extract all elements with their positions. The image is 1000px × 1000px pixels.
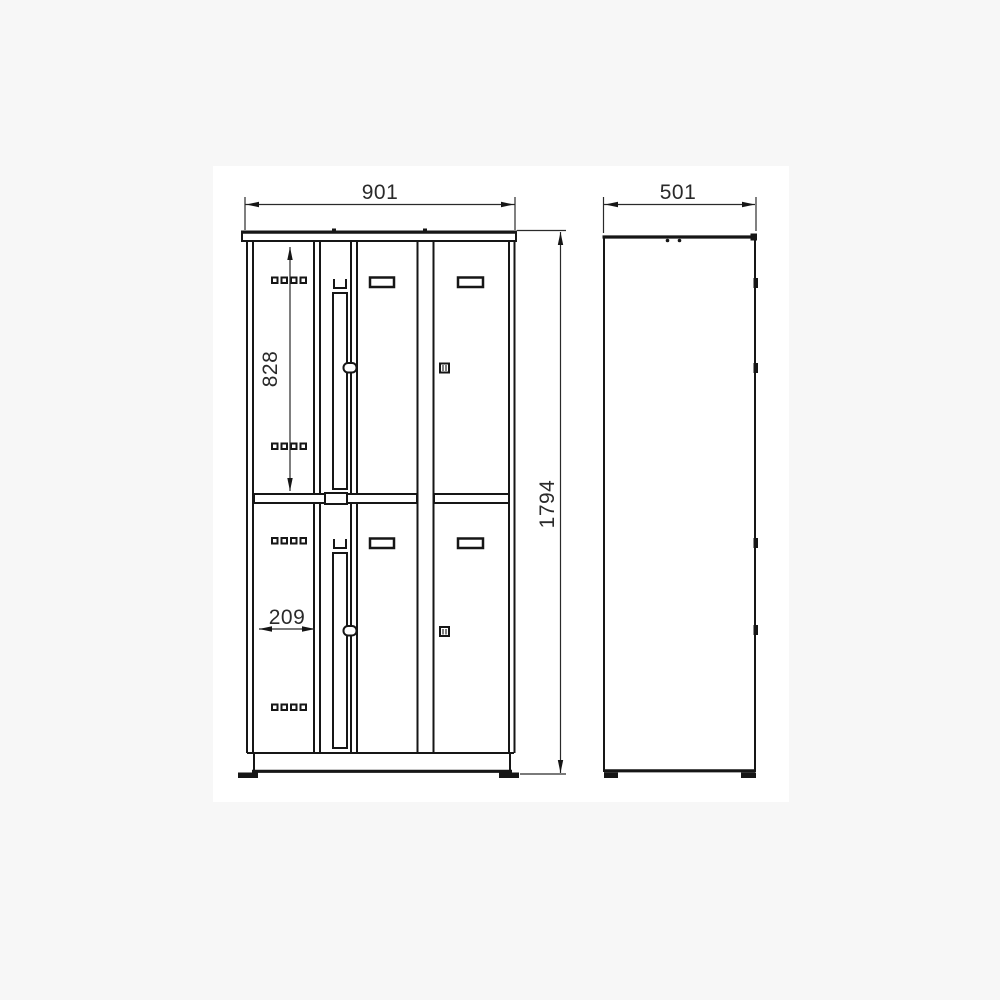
vent-hole bbox=[282, 705, 288, 711]
foot bbox=[741, 773, 756, 779]
dim-value-height: 1794 bbox=[536, 480, 559, 529]
vent-hole bbox=[291, 444, 297, 450]
vent-hole bbox=[291, 278, 297, 284]
vent-hole bbox=[272, 278, 278, 284]
product-drawing-page: 901 501 1794 828 209 bbox=[0, 0, 1000, 1000]
screw-hole bbox=[678, 239, 682, 243]
door-handle-recess bbox=[333, 293, 347, 489]
vent-hole bbox=[301, 444, 307, 450]
key-lock-body bbox=[440, 364, 449, 373]
foot bbox=[238, 773, 258, 779]
vent-hole bbox=[272, 444, 278, 450]
hinge-mark bbox=[754, 363, 759, 373]
dim-value-compartment-height: 828 bbox=[259, 351, 282, 388]
side-top-corner-block bbox=[751, 234, 758, 241]
foot bbox=[604, 773, 618, 779]
vent-hole bbox=[301, 278, 307, 284]
vent-hole bbox=[291, 538, 297, 544]
key-lock-icon bbox=[440, 627, 449, 636]
mid-divider-center-box bbox=[325, 493, 347, 504]
front-mid-divider bbox=[254, 493, 509, 504]
vent-hole bbox=[272, 705, 278, 711]
cylinder-lock-icon bbox=[344, 626, 357, 636]
key-lock-body bbox=[440, 627, 449, 636]
foot bbox=[499, 773, 519, 779]
vent-hole bbox=[301, 705, 307, 711]
vent-hole bbox=[291, 705, 297, 711]
top-seam-tick bbox=[423, 229, 427, 232]
key-lock-icon bbox=[440, 364, 449, 373]
dim-value-compartment-width: 209 bbox=[269, 606, 306, 629]
hinge-mark bbox=[754, 278, 759, 288]
mid-divider-right-band bbox=[434, 494, 509, 503]
vent-hole bbox=[301, 538, 307, 544]
hinge-mark bbox=[754, 625, 759, 635]
vent-hole bbox=[282, 538, 288, 544]
cylinder-lock-icon bbox=[344, 363, 357, 373]
vent-hole bbox=[282, 278, 288, 284]
door-label-slot bbox=[458, 539, 483, 549]
dim-value-depth: 501 bbox=[660, 181, 697, 204]
door-label-slot bbox=[370, 278, 394, 288]
side-view bbox=[603, 234, 759, 779]
door-handle-recess bbox=[333, 553, 347, 748]
door-label-slot bbox=[458, 278, 483, 288]
screw-hole bbox=[666, 239, 670, 243]
locker-technical-drawing: 901 501 1794 828 209 bbox=[0, 0, 1000, 1000]
dim-value-width: 901 bbox=[362, 181, 399, 204]
top-seam-tick bbox=[332, 229, 336, 232]
hinge-mark bbox=[754, 538, 759, 548]
vent-hole bbox=[272, 538, 278, 544]
side-body-panel bbox=[604, 237, 755, 771]
door-label-slot bbox=[370, 539, 394, 549]
vent-hole bbox=[282, 444, 288, 450]
